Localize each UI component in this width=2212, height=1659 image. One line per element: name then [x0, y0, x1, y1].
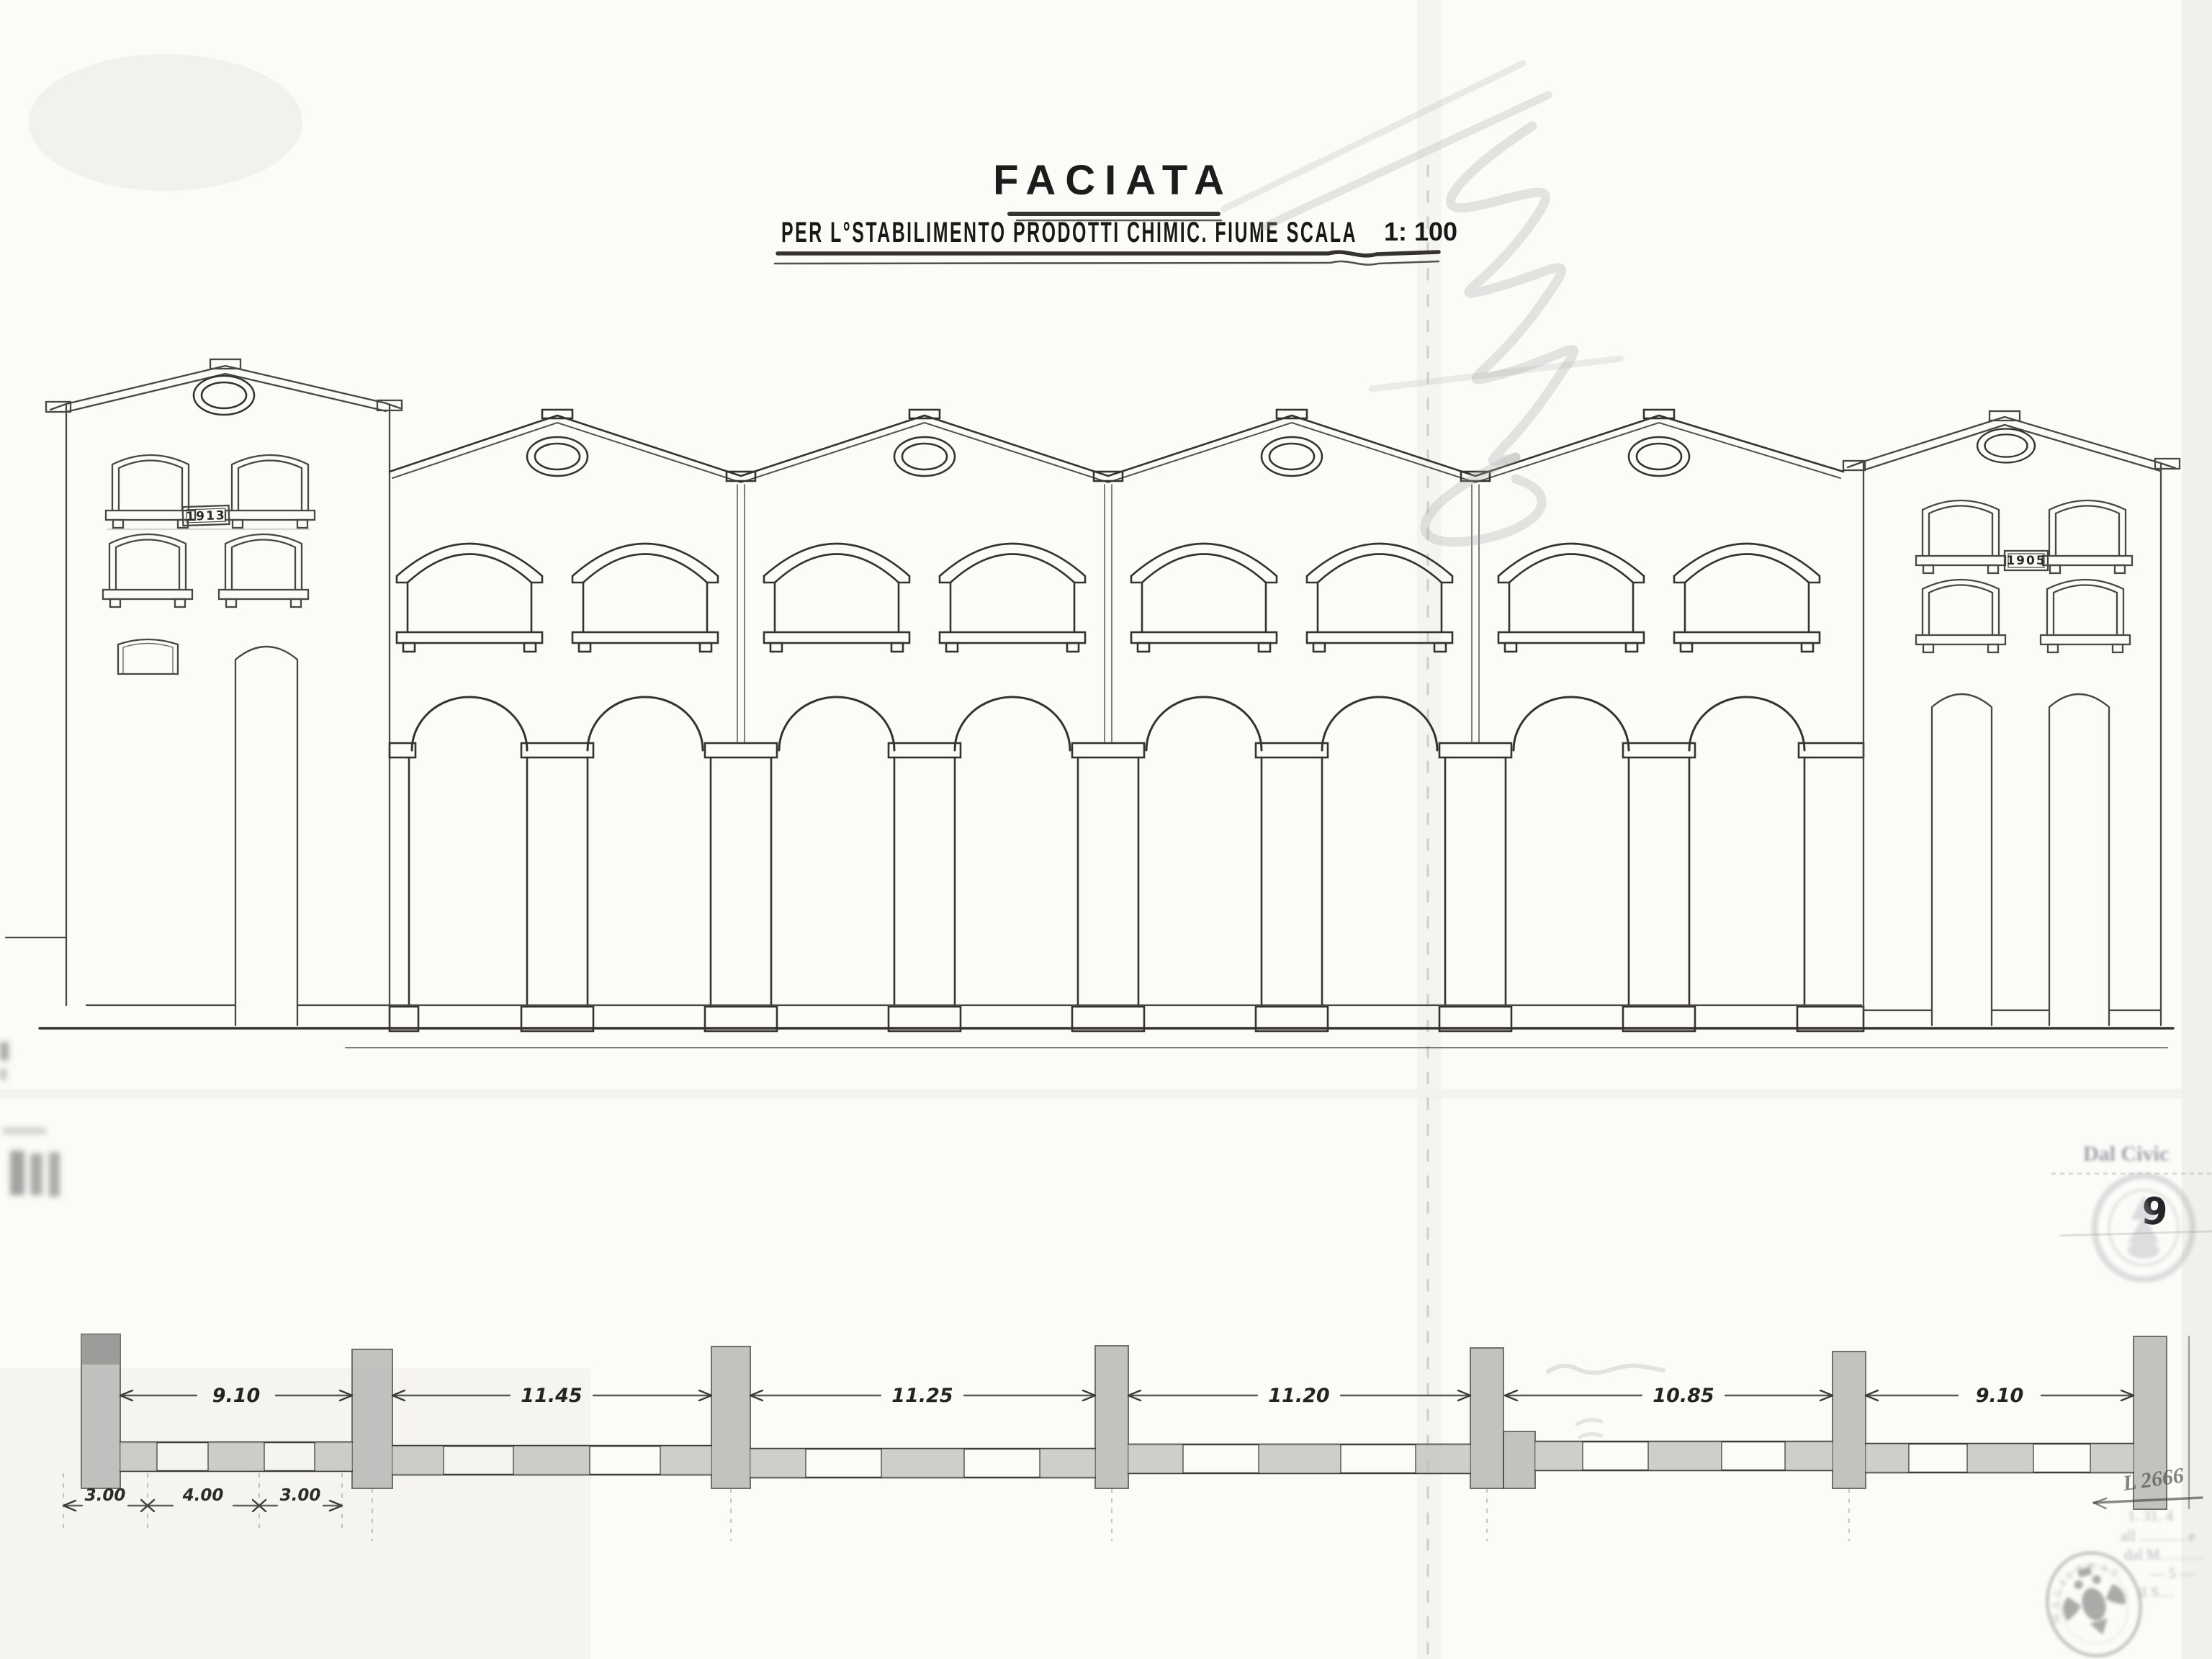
arched-window: [397, 544, 542, 652]
plan-wall-bay4: [1128, 1444, 1470, 1473]
basement-window: [118, 639, 178, 674]
arcade-pier: [889, 743, 961, 1031]
dimension-label: 9.10: [212, 1385, 261, 1407]
arched-window: [572, 544, 718, 652]
arched-window: [1498, 544, 1644, 652]
dimension-label: 11.20: [1268, 1385, 1329, 1407]
oculus-window: [527, 437, 588, 476]
sawtooth-roof: [390, 415, 1843, 476]
svg-text:il S…: il S…: [2139, 1583, 2175, 1601]
plan-wall-bay2: [392, 1446, 711, 1475]
pilaster-lines: [737, 485, 1479, 742]
arcade-arch: [779, 697, 894, 750]
corner-label: Dal Civic: [2083, 1142, 2169, 1166]
drawing-sheet: FACIATA PER L°STABILIMENTO PRODOTTI CHIM…: [0, 0, 2212, 1659]
sub-dimension-label: 3.00: [280, 1486, 321, 1505]
left-edge-smudges: [0, 1042, 60, 1197]
dimension-label: 10.85: [1653, 1385, 1714, 1407]
vertical-fold-band: [1417, 0, 1442, 1659]
arched-door: [1932, 694, 1992, 1025]
date-plaque-1913: 1913: [183, 505, 230, 526]
dimension-label: 11.25: [891, 1385, 953, 1407]
svg-text:all ……… e: all ……… e: [2121, 1527, 2195, 1545]
arcade-pier: [1439, 743, 1511, 1031]
title-block: FACIATA PER L°STABILIMENTO PRODOTTI CHIM…: [775, 157, 1457, 265]
arcade-arch: [588, 697, 703, 750]
entrance-door: [235, 647, 297, 1025]
window: [219, 534, 308, 607]
window: [225, 455, 315, 528]
arcade-pier: [521, 743, 593, 1031]
plan-pier: [711, 1346, 750, 1488]
arched-window: [1674, 544, 1820, 652]
arcade-arch: [412, 697, 527, 750]
registry-block: L 2666 1. 31. 4 all ……… e dal M……… — 5 —…: [2036, 1463, 2206, 1659]
ground-lines: [40, 1005, 2173, 1048]
oculus-window: [1262, 437, 1322, 476]
dimension-label: 9.10: [1976, 1385, 2024, 1407]
page-title: FACIATA: [993, 157, 1233, 204]
sub-dimension-label: 3.00: [85, 1486, 126, 1505]
date-plaque-1905: 1905: [2005, 551, 2048, 570]
svg-text:— 5 —: — 5 —: [2149, 1565, 2195, 1582]
svg-text:1. 31. 4: 1. 31. 4: [2128, 1507, 2174, 1524]
pencil-note-smudge: [1548, 1366, 1663, 1373]
left-building: 1913: [6, 359, 402, 1025]
oculus-window: [1629, 437, 1689, 476]
oculus-window: [194, 376, 254, 415]
center-bays: [390, 410, 1863, 1031]
ground-arcade: [390, 697, 1863, 1031]
window: [1916, 500, 2005, 573]
arched-window: [764, 544, 909, 652]
dimension-label: 11.45: [521, 1385, 582, 1407]
right-building: 1905: [1843, 411, 2180, 1025]
arched-window: [940, 544, 1085, 652]
arcade-arch: [1514, 697, 1629, 750]
window: [1916, 580, 2005, 652]
window: [2043, 500, 2132, 573]
plan-pier: [1095, 1346, 1128, 1488]
arcade-pier: [705, 743, 777, 1031]
arcade-arch: [955, 697, 1070, 750]
drawing-canvas: FACIATA PER L°STABILIMENTO PRODOTTI CHIM…: [0, 0, 2212, 1659]
plan-pier: [1470, 1348, 1503, 1488]
plan-wall-bay6: [1866, 1444, 2134, 1473]
plan-wall-bay1: [120, 1442, 352, 1471]
arched-door: [2049, 694, 2109, 1025]
plan-pier: [352, 1349, 392, 1488]
plaque-year: 1913: [186, 508, 226, 524]
plaque-year: 1905: [2006, 554, 2046, 568]
window: [103, 534, 192, 607]
plan-wall-bay3: [750, 1449, 1095, 1478]
pencil-note-smudge: [1577, 1420, 1601, 1437]
arched-window: [1131, 544, 1277, 652]
scale-label: 1: 100: [1384, 217, 1457, 246]
arcade-pier: [1256, 743, 1328, 1031]
elevation-drawing: 1913: [6, 359, 2180, 1048]
oculus-window: [1977, 429, 2035, 463]
arcade-arch: [1689, 697, 1804, 750]
arcade-arch: [1146, 697, 1262, 750]
window: [2041, 580, 2130, 652]
plan-pier-step: [1503, 1431, 1535, 1488]
sub-dimension-label: 4.00: [182, 1486, 224, 1505]
plan-wall-bay5: [1535, 1442, 1833, 1470]
plan-pier: [1833, 1352, 1866, 1488]
arcade-pier: [1072, 743, 1144, 1031]
oculus-window: [894, 437, 955, 476]
arcade-pier: [1623, 743, 1695, 1031]
window: [106, 455, 195, 528]
horizontal-fold-band: [0, 1089, 2212, 1099]
svg-text:dal M………: dal M………: [2124, 1546, 2206, 1563]
